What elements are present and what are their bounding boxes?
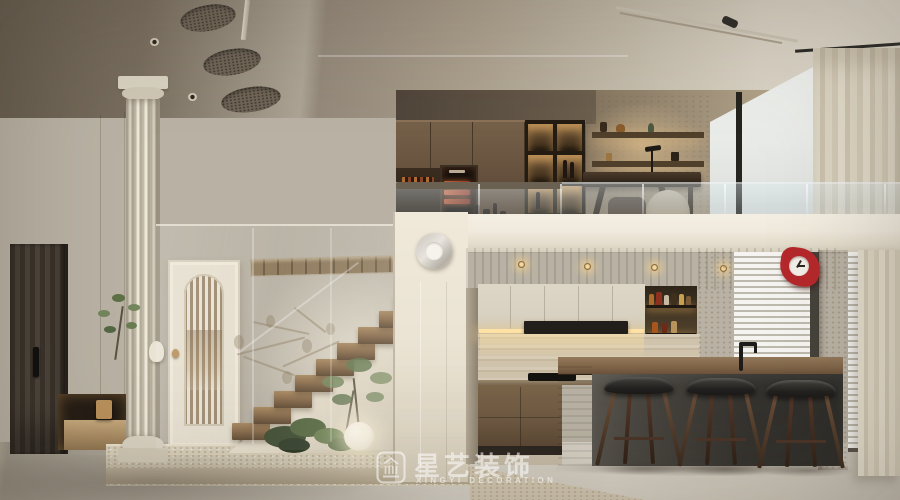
spice-jar xyxy=(671,293,677,305)
display-cubby xyxy=(528,124,553,151)
spice-jar xyxy=(671,321,677,333)
kitchen-faucet-drop xyxy=(754,344,757,353)
range-hood xyxy=(524,321,628,334)
loft-bulkhead xyxy=(396,90,596,124)
spice-jar xyxy=(656,292,662,305)
floor-shadow xyxy=(0,455,380,500)
column-base-plinth xyxy=(118,448,168,462)
spice-jar xyxy=(679,294,684,305)
island-countertop xyxy=(558,357,843,375)
watermark: 星艺装饰 XINGYI DECORATION xyxy=(376,448,636,492)
spice-jar xyxy=(652,322,658,333)
bar-stool xyxy=(686,378,756,470)
stool-leg xyxy=(728,393,737,465)
soffit-downlight xyxy=(518,261,525,268)
stool-footrest xyxy=(696,438,746,441)
display-cubby xyxy=(557,124,582,151)
stool-footrest xyxy=(614,437,664,440)
display-cubby xyxy=(528,155,553,182)
stool-footrest xyxy=(776,440,826,443)
potted-plant-left xyxy=(92,288,148,360)
wine-bottle xyxy=(570,162,574,178)
plant-stem xyxy=(114,306,123,360)
bar-stool xyxy=(766,380,836,472)
stool-seat xyxy=(604,377,674,394)
shelf-decor xyxy=(671,152,679,161)
recessed-light xyxy=(150,38,159,46)
red-clock-hand xyxy=(798,265,805,267)
column-shaft xyxy=(126,99,160,439)
kitchen-side-wall xyxy=(466,288,478,464)
stool-seat xyxy=(766,380,836,397)
stool-leg xyxy=(808,395,817,467)
watermark-brand-en: XINGYI DECORATION xyxy=(416,476,556,485)
stool-seat xyxy=(686,378,756,395)
wine-bottle xyxy=(563,160,567,178)
kitchen-faucet xyxy=(739,344,743,371)
stool-leg xyxy=(646,392,655,464)
niche-plaque xyxy=(96,400,112,419)
floor-curtain xyxy=(858,250,900,476)
spice-jar xyxy=(664,295,669,305)
shelf-decor xyxy=(616,124,625,132)
soffit-downlight xyxy=(584,263,591,270)
door-handle xyxy=(33,347,39,377)
shelf-decor xyxy=(648,123,654,132)
plant-leaf xyxy=(112,294,125,302)
spice-jar xyxy=(649,294,654,305)
glass-partition xyxy=(156,224,402,450)
shelf-decor xyxy=(606,153,612,161)
floating-shelf xyxy=(592,132,704,138)
spice-jar xyxy=(662,323,667,333)
shelf-decor xyxy=(600,122,607,132)
travertine-pillar-left xyxy=(697,250,734,366)
plant-leaf xyxy=(98,310,110,317)
spice-jar xyxy=(686,296,691,305)
soffit-downlight xyxy=(651,264,658,271)
cabinet-seam xyxy=(479,417,561,418)
glass-streak xyxy=(330,228,332,442)
wine-cooler-display xyxy=(449,170,465,173)
cabinet-seam xyxy=(510,286,511,330)
marble-clock-face xyxy=(425,242,443,260)
stool-leg xyxy=(705,393,714,465)
plant-leaf xyxy=(126,322,137,329)
glass-streak xyxy=(252,228,254,444)
plant-leaf xyxy=(104,326,116,333)
stool-leg xyxy=(785,395,794,467)
xingyi-logo-icon xyxy=(376,451,406,484)
loft-desk-lamp xyxy=(651,150,653,174)
plant-leaf xyxy=(128,304,140,311)
spice-shelf xyxy=(646,305,696,308)
floating-shelf xyxy=(592,161,704,167)
interior-duplex-render: 星艺装饰 XINGYI DECORATION xyxy=(0,0,900,500)
ceiling-seam xyxy=(318,55,628,57)
